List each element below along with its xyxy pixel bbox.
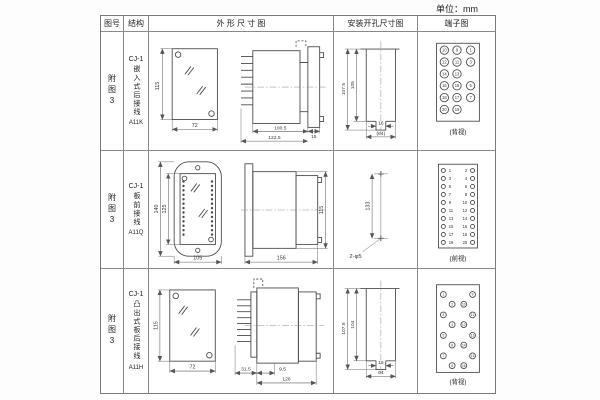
terminal-number: 20: [463, 239, 468, 244]
terminal-number: 15: [471, 354, 475, 358]
outline-drawing-row1: 115 72 100.5 15 122.5: [150, 33, 333, 150]
table-row3-install: 107.5 104 16 64: [334, 269, 418, 393]
dim-inner-height: 125: [161, 204, 167, 213]
screw-icon: [208, 237, 213, 242]
terminal-circle: [441, 240, 445, 244]
dim-front-height: 115: [154, 81, 160, 90]
dim-b: 9.5: [279, 367, 286, 373]
hook-tab: [316, 294, 320, 358]
table-row1-structure: CJ-1 嵌入式后接线 A11K: [124, 32, 149, 151]
terminal-number: 18: [442, 95, 447, 100]
terminal-number: 12: [442, 59, 447, 64]
mount-label: 板前接线: [131, 192, 141, 226]
terminal-number: 1: [442, 293, 444, 297]
table-row2-install: 133 2-φ5: [334, 151, 418, 269]
dimensions: 133 2-φ5: [349, 173, 372, 259]
mount-label: 嵌入式后接线: [131, 65, 141, 117]
code-label: A11Q: [129, 230, 144, 236]
outline-drawing-row3: 115 72 31.5 9.5 126: [150, 270, 333, 392]
terminal-number: 3: [449, 176, 452, 181]
dim-outer-height: 140: [153, 204, 159, 213]
terminal-number: 16: [462, 364, 466, 368]
dimensions: 107.5 104 16 64: [341, 289, 395, 379]
terminal-grid-row2: 1357911131517192468101214161820: [441, 168, 474, 245]
table-row1-outline: 115 72 100.5 15 122.5: [149, 32, 334, 151]
screw-icon: [182, 176, 187, 181]
front-view: [169, 290, 215, 361]
table-row2-structure: CJ-1 板前接线 A11Q: [124, 151, 149, 269]
terminal-number: 3: [469, 59, 472, 64]
terminal-number: 8: [451, 364, 453, 368]
terminal-number: 1: [449, 168, 452, 173]
terminal-circle: [441, 216, 445, 220]
terminal-number: 2: [451, 302, 453, 306]
table-row2-terminal: 1357911131517192468101214161820 (前视): [418, 151, 495, 269]
terminal-number: 7: [449, 192, 452, 197]
side-view: [241, 163, 328, 255]
terminal-number: 11: [455, 59, 460, 64]
hatch-mark: [190, 183, 207, 217]
terminal-circle: [471, 216, 475, 220]
terminal-grid-row1: 109112113141316155181772019: [440, 45, 475, 113]
pins: [237, 300, 251, 342]
catalog-page: 单位：mm 图号 结构 外 形 尺 寸 图 安装开孔尺寸图 端子图 附图3 CJ…: [0, 0, 600, 400]
code-label: A11K: [129, 120, 143, 126]
hatch-mark: [178, 306, 199, 337]
fig-no-label: 附图3: [107, 314, 118, 348]
terminal-circle: [441, 232, 445, 236]
terminal-circle: [441, 208, 445, 212]
terminal-number: 10: [463, 200, 468, 205]
side-view: [241, 40, 326, 127]
terminal-number: 13: [455, 71, 460, 76]
dim-width: 64: [378, 370, 384, 376]
terminal-number: 17: [455, 95, 460, 100]
dimensions: 115 72 100.5 15 122.5: [154, 48, 319, 142]
terminal-number: 2: [465, 168, 468, 173]
dim-length: 156: [276, 255, 285, 261]
terminal-circle: [441, 176, 445, 180]
mount-label: 凸出式板后接线: [131, 300, 141, 360]
header-terminal: 端子图: [418, 16, 495, 32]
terminal-number: 9: [456, 47, 459, 52]
terminal-circle: [471, 208, 475, 212]
terminal-number: 13: [449, 216, 454, 221]
terminal-number: 15: [455, 83, 460, 88]
terminal-circle: [471, 168, 475, 172]
terminal-circle: [471, 240, 475, 244]
view-label: (背视): [450, 377, 467, 386]
view-label: (背视): [450, 126, 467, 135]
terminal-circle: [471, 200, 475, 204]
handle-dashed: [253, 279, 262, 288]
outline-drawing-row2: 140 125 105 156 115: [150, 152, 333, 268]
terminal-number: 6: [465, 184, 468, 189]
table-row1-terminal: 109112113141316155181772019 (背视): [418, 32, 495, 151]
side-view: [237, 279, 324, 363]
screw-icon: [172, 293, 178, 299]
dim-flange: 15: [311, 134, 317, 140]
screw-icon: [195, 165, 199, 169]
table-row1-install: 107.5 105 16 (64): [334, 32, 418, 151]
dim-inner-height: 104: [350, 320, 356, 328]
terminal-number: 16: [463, 224, 468, 229]
table-row2-fig: 附图3: [101, 151, 124, 269]
terminal-number: 17: [449, 232, 454, 237]
dim-front-width: 72: [191, 122, 197, 128]
screw-icon: [175, 51, 181, 57]
terminal-number: 7: [442, 354, 444, 358]
terminal-number: 11: [449, 208, 454, 213]
table-row3-terminal: 13572468101214169111315 (背视): [418, 269, 495, 393]
screw-icon: [208, 110, 214, 116]
install-drawing-row2: 133 2-φ5: [335, 152, 417, 268]
view-label: (前视): [450, 253, 467, 262]
terminal-number: 6: [451, 343, 453, 347]
header-outline: 外 形 尺 寸 图: [149, 16, 334, 32]
unit-label: 单位：mm: [436, 2, 478, 15]
install-drawing-row3: 107.5 104 16 64: [335, 270, 417, 392]
dim-front-width: 72: [189, 365, 195, 371]
terminal-number: 1: [469, 47, 472, 52]
terminal-drawing-row2: 1357911131517192468101214161820 (前视): [419, 152, 494, 268]
screw-icon: [206, 352, 212, 358]
fig-no-label: 附图3: [107, 193, 118, 227]
spec-table: 图号 结构 外 形 尺 寸 图 安装开孔尺寸图 端子图 附图3 CJ-1 嵌入式…: [100, 15, 496, 394]
dim-notch: 16: [378, 120, 384, 126]
fig-no-label: 附图3: [107, 74, 118, 108]
pins: [241, 56, 253, 104]
terminal-number: 4: [451, 323, 453, 327]
terminal-circle: [471, 192, 475, 196]
terminal-number: 9: [449, 200, 452, 205]
dim-inner-height: 105: [350, 80, 356, 88]
terminal-drawing-row1: 109112113141316155181772019 (背视): [419, 33, 494, 150]
dim-depth: 100.5: [274, 125, 287, 131]
terminal-number: 12: [462, 323, 466, 327]
terminal-number: 16: [442, 83, 447, 88]
hatch-mark: [184, 66, 205, 95]
terminal-number: 14: [462, 343, 466, 347]
terminal-circle: [471, 176, 475, 180]
terminal-grid-row3: 13572468101214169111315: [440, 292, 475, 369]
screw-icon: [195, 248, 199, 252]
terminal-number: 10: [442, 47, 447, 52]
terminal-circle: [471, 224, 475, 228]
terminal-circle: [441, 184, 445, 188]
terminal-number: 10: [462, 302, 466, 306]
terminal-number: 14: [442, 71, 447, 76]
leader-line: [362, 238, 381, 252]
terminal-number: 7: [469, 95, 472, 100]
dim-outer-height: 107.5: [341, 82, 347, 94]
terminal-number: 3: [442, 313, 444, 317]
dim-total: 122.5: [268, 135, 281, 141]
dim-outer-height: 107.5: [341, 322, 347, 334]
terminal-circle: [471, 232, 475, 236]
header-install: 安装开孔尺寸图: [334, 16, 418, 32]
dim-front-height: 115: [153, 321, 159, 330]
table-row3-structure: CJ-1 凸出式板后接线 A11H: [124, 269, 149, 393]
table-row3-outline: 115 72 31.5 9.5 126: [149, 269, 334, 393]
table-row1-fig: 附图3: [101, 32, 124, 151]
terminal-drawing-row3: 13572468101214169111315 (背视): [419, 270, 494, 392]
dim-width: (64): [376, 130, 385, 136]
terminal-circle: [441, 192, 445, 196]
code-label: A11H: [129, 365, 144, 371]
dimensions: 107.5 105 16 (64): [341, 49, 395, 139]
header-structure: 结构: [124, 16, 149, 32]
terminal-number: 13: [471, 334, 475, 338]
terminal-number: 9: [472, 293, 474, 297]
terminal-circle: [441, 168, 445, 172]
terminal-circle: [471, 184, 475, 188]
front-view: [174, 161, 221, 255]
terminal-number: 19: [455, 106, 460, 111]
dim-hole-spacing: 133: [365, 201, 371, 210]
terminal-number: 18: [463, 232, 468, 237]
model-label: CJ-1: [129, 56, 144, 63]
install-drawing-row1: 107.5 105 16 (64): [335, 33, 417, 150]
dimensions: 115 72 31.5 9.5 126: [153, 290, 316, 385]
terminal-circle: [441, 224, 445, 228]
handle-dashed: [296, 40, 306, 46]
terminal-number: 20: [442, 106, 447, 111]
dim-front-width: 105: [193, 255, 202, 261]
front-view: [172, 48, 217, 119]
dim-a: 31.5: [241, 367, 251, 373]
terminal-number: 5: [442, 334, 444, 338]
terminal-number: 5: [449, 184, 452, 189]
table-row2-outline: 140 125 105 156 115: [149, 151, 334, 269]
terminal-number: 5: [469, 83, 472, 88]
terminal-number: 11: [471, 313, 475, 317]
header-fig-no: 图号: [101, 16, 124, 32]
dim-side-height: 115: [319, 205, 325, 214]
table-row3-fig: 附图3: [101, 269, 124, 393]
terminal-number: 15: [449, 224, 454, 229]
terminal-circle: [441, 200, 445, 204]
dim-notch: 16: [378, 360, 384, 366]
dim-total: 126: [282, 376, 290, 382]
terminal-number: 4: [465, 176, 468, 181]
terminal-number: 8: [465, 192, 468, 197]
model-label: CJ-1: [129, 183, 144, 190]
hole-spec-label: 2-φ5: [349, 253, 361, 259]
terminal-number: 14: [463, 216, 468, 221]
terminal-number: 12: [463, 208, 468, 213]
model-label: CJ-1: [129, 291, 144, 298]
terminal-number: 19: [449, 239, 454, 244]
